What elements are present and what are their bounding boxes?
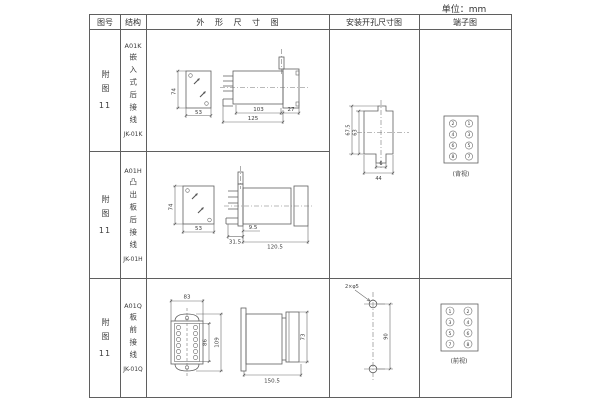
mounting-holes [364,292,385,381]
dimension-body-103: 103 [235,105,282,115]
cutout-outline [357,100,409,169]
structure-cell-row1: A01K 嵌入式后接线 JK-01K [120,29,146,151]
svg-text:2: 2 [452,121,455,127]
model-label: A01K [125,42,142,50]
header-mounting: 安装开孔尺寸图 [329,15,419,29]
structure-label: 嵌入式后接线 [129,53,137,128]
dimension-width-53: 53 [185,108,212,118]
header-terminal: 端子图 [419,15,511,29]
terminal-circles-right: 1 3 5 7 [465,120,472,160]
svg-text:109: 109 [215,337,221,348]
svg-text:86: 86 [203,339,209,346]
terminal-circles-left: 2 4 6 8 [449,120,456,160]
svg-text:8: 8 [452,154,455,160]
dimension-width-83: 83 [170,295,204,322]
code-label: JK-01K [124,131,143,138]
dimension-pitch-90: 90 [377,303,393,370]
view-label: (前视) [451,357,468,365]
svg-text:120.5: 120.5 [267,245,283,251]
figure-label: 附图 [101,70,109,98]
side-view [224,166,314,226]
figure-label: 附图 [101,318,109,346]
spec-table: 图号 结构 外 形 尺 寸 图 安装开孔尺寸图 端子图 附图 11 A01K 嵌… [89,14,512,398]
dimension-width-44: 44 [363,155,394,182]
structure-label: 板前接线 [129,313,137,363]
dimension-inset-9-5: 9.5 [242,225,260,233]
svg-text:3: 3 [449,320,452,326]
front-view [186,71,211,108]
svg-text:53: 53 [195,110,202,116]
svg-text:2: 2 [467,309,470,315]
svg-text:44: 44 [375,176,381,182]
svg-text:9.5: 9.5 [249,225,258,231]
terminal-circles-right: 2 4 6 8 [464,307,472,348]
side-view [220,49,308,108]
dimension-height-74: 74 [169,185,184,225]
svg-text:2×φ5: 2×φ5 [345,284,359,290]
structure-cell-row3: A01Q 板前接线 JK-01Q [120,278,146,397]
structure-label: 凸出板后接线 [129,178,137,253]
svg-text:150.5: 150.5 [264,379,280,385]
svg-text:53: 53 [195,226,202,232]
svg-text:5: 5 [449,331,452,337]
svg-text:73: 73 [301,333,307,340]
figure-label: 附图 [101,195,109,223]
svg-text:67.5: 67.5 [346,124,352,135]
svg-text:3: 3 [468,132,471,138]
figure-cell-row3: 附图 11 [90,278,120,397]
figure-number: 11 [99,101,111,110]
side-view [241,308,299,371]
view-label: (背视) [453,170,470,178]
dimension-height-74: 74 [172,70,187,109]
svg-text:1: 1 [468,121,471,127]
dimension-outer-109: 109 [196,313,223,372]
dimension-front-31-5: 31.5 [227,224,244,246]
svg-text:6: 6 [467,331,470,337]
svg-text:125: 125 [248,116,259,122]
svg-text:7: 7 [449,342,452,348]
header-structure: 结构 [120,15,146,29]
svg-text:6: 6 [452,143,455,149]
hole-callout: 2×φ5 [345,284,370,301]
terminal-box [441,304,478,351]
svg-text:103: 103 [253,107,264,113]
front-view [183,186,214,224]
code-label: JK-01H [123,256,142,263]
model-label: A01H [124,167,142,175]
svg-text:74: 74 [172,88,178,95]
outline-drawing-a01k: 74 53 [146,29,329,151]
svg-text:1: 1 [449,309,452,315]
svg-text:5: 5 [468,143,471,149]
svg-text:31.5: 31.5 [229,240,242,246]
terminal-drawing-front: 1 3 5 7 2 4 6 8 (前视) [419,278,511,397]
svg-text:4: 4 [452,132,455,138]
terminal-box [444,116,478,163]
svg-text:27: 27 [288,107,295,113]
figure-number: 11 [99,226,111,235]
svg-text:74: 74 [169,203,175,210]
dimension-inner-86: 86 [200,322,212,362]
figure-cell-row1: 附图 11 [90,29,120,151]
svg-text:7: 7 [468,154,471,160]
dimension-outer-67-5: 67.5 [346,105,379,155]
figure-cell-row2: 附图 11 [90,151,120,278]
code-label: JK-01Q [123,366,143,373]
dimension-side-73: 73 [299,311,309,363]
header-figure: 图号 [90,15,120,29]
front-view [171,308,203,377]
dimension-inner-63: 63 [353,110,365,155]
outline-drawing-a01q: 83 [146,278,329,397]
svg-text:6: 6 [379,161,382,167]
svg-text:63: 63 [353,129,359,135]
mounting-drawing-kh: 67.5 63 6 44 [329,29,419,278]
figure-number: 11 [99,349,111,358]
structure-cell-row2: A01H 凸出板后接线 JK-01H [120,151,146,278]
terminal-drawing-rear: 2 4 6 8 1 3 5 7 (背视) [419,29,511,278]
outline-drawing-a01h: 74 53 [146,151,329,278]
scanned-spec-page: 单位：mm 图号 结构 外 形 尺 寸 图 安装开孔尺寸图 端子图 附图 11 … [0,0,600,400]
terminal-circles-left: 1 3 5 7 [446,307,454,348]
svg-text:83: 83 [184,295,191,301]
svg-text:4: 4 [467,320,470,326]
svg-text:90: 90 [384,333,390,339]
dimension-width-53: 53 [182,224,215,234]
svg-text:8: 8 [467,342,470,348]
mounting-drawing-q: 2×φ5 90 [329,278,419,397]
model-label: A01Q [124,302,142,310]
header-outline: 外 形 尺 寸 图 [146,15,329,29]
dimension-depth-150-5: 150.5 [243,364,302,385]
